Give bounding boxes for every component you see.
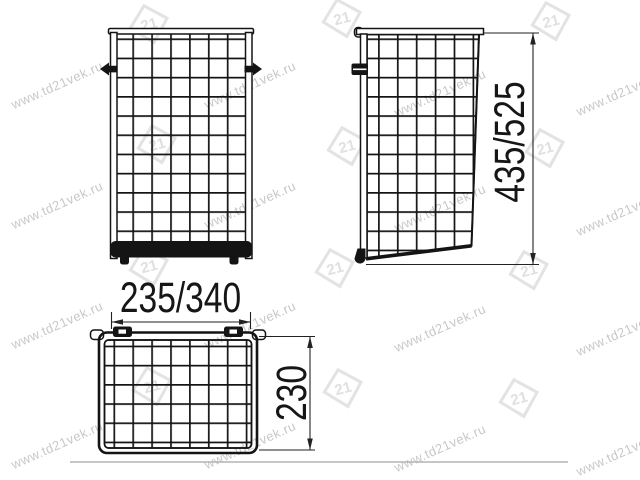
watermark-logo-icon: 21 — [312, 245, 359, 292]
side-mesh-panel — [367, 35, 479, 259]
wire-basket-dimension-drawing: www.td21vek.ruwww.td21vek.ruwww.td21vek.… — [0, 0, 640, 480]
front-mesh-panel — [114, 34, 249, 243]
side-view — [352, 28, 484, 264]
dim-width-label: 235/340 — [120, 274, 241, 322]
watermark-text: www.td21vek.ru — [573, 65, 640, 119]
svg-text:21: 21 — [325, 258, 346, 279]
front-view — [100, 29, 262, 265]
svg-text:21: 21 — [541, 11, 562, 32]
watermark-text: www.td21vek.ru — [573, 185, 640, 239]
dimension-width: 235/340 — [112, 274, 251, 329]
top-mesh-panel — [105, 340, 252, 448]
svg-text:21: 21 — [535, 138, 556, 159]
dim-depth-arrow-top-icon — [307, 337, 313, 349]
svg-text:21: 21 — [509, 388, 530, 409]
watermark-text: www.td21vek.ru — [8, 418, 105, 472]
front-top-rim — [109, 29, 254, 35]
dim-depth-arrow-bottom-icon — [307, 439, 313, 451]
watermark-text: www.td21vek.ru — [391, 301, 488, 355]
watermark-text: www.td21vek.ru — [8, 298, 105, 352]
svg-text:21: 21 — [333, 378, 354, 399]
front-bottom-rail — [111, 241, 253, 258]
watermark-logo-icon: 21 — [496, 375, 543, 422]
top-clip-right-slot — [230, 330, 238, 334]
front-foot-right — [230, 256, 239, 265]
watermark-logo-icon: 21 — [320, 365, 367, 412]
side-top-rim — [357, 29, 484, 35]
dim-height-arrow-top-icon — [530, 33, 536, 45]
drawing-canvas: www.td21vek.ruwww.td21vek.ruwww.td21vek.… — [0, 0, 640, 480]
watermark-logo-icon: 21 — [528, 0, 575, 44]
svg-text:21: 21 — [332, 8, 353, 29]
side-foot — [355, 249, 366, 264]
watermark-text: www.td21vek.ru — [573, 425, 640, 479]
dim-depth-label: 230 — [268, 365, 316, 421]
dim-height-label: 435/525 — [486, 81, 534, 202]
watermark-text: www.td21vek.ru — [8, 178, 105, 232]
watermark-text: www.td21vek.ru — [391, 421, 488, 475]
front-foot-left — [120, 256, 129, 265]
watermark-layer: www.td21vek.ruwww.td21vek.ruwww.td21vek.… — [8, 0, 640, 479]
top-clip-left-slot — [119, 330, 127, 334]
watermark-text: www.td21vek.ru — [8, 58, 105, 112]
svg-text:21: 21 — [519, 260, 540, 281]
top-view — [91, 327, 266, 454]
svg-text:21: 21 — [337, 136, 358, 157]
watermark-text: www.td21vek.ru — [573, 305, 640, 359]
watermark-logo-icon: 21 — [506, 247, 553, 294]
